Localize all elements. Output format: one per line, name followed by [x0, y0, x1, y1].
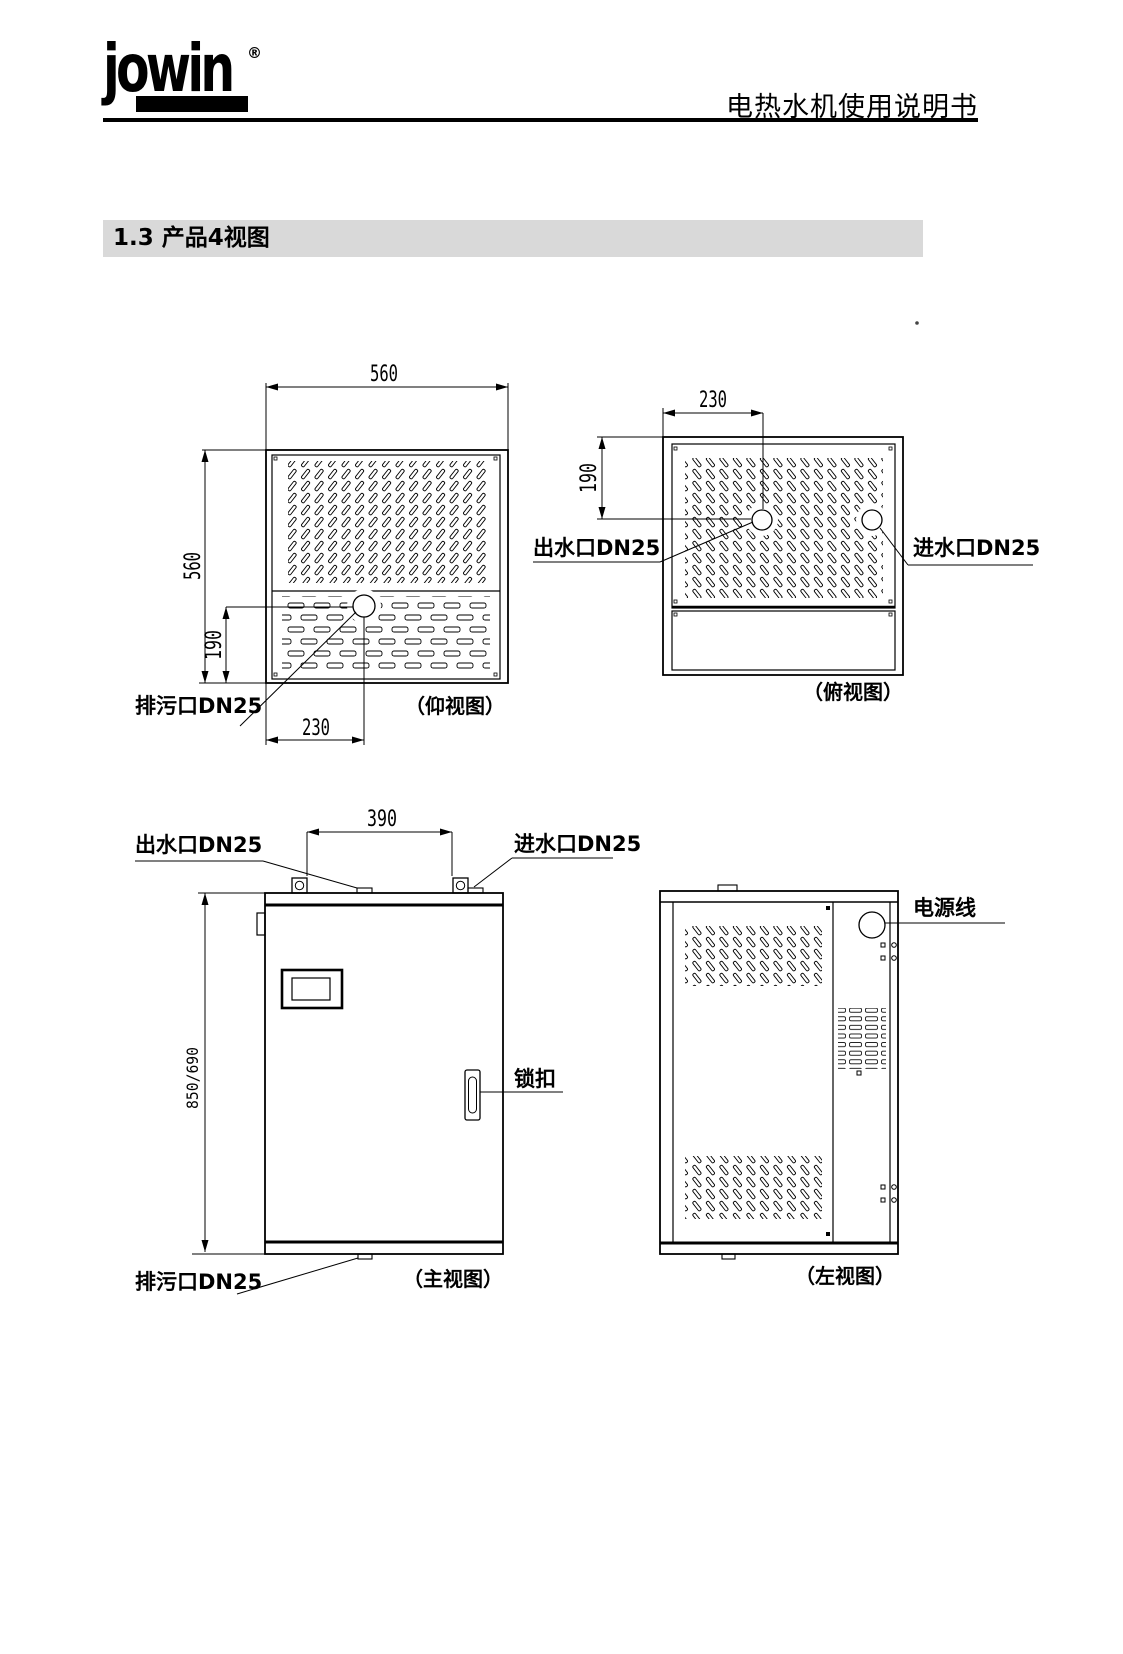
- stray-mark: [915, 321, 919, 325]
- fasteners-top: [881, 943, 896, 961]
- vent-slots-upper: [685, 926, 822, 986]
- label-power-cord: 电源线: [913, 896, 976, 920]
- outlet-fitting: [292, 878, 307, 893]
- dim-height: 560: [181, 552, 206, 580]
- front-strip: [672, 611, 895, 670]
- bottom-view: 560 560 190 230 排污口DN25 （仰视图）: [135, 362, 508, 745]
- latch-handle: [469, 1077, 477, 1113]
- fasteners-bottom: [881, 1185, 896, 1203]
- vent-slots-lower: [685, 1156, 822, 1219]
- control-panel-screen: [292, 978, 330, 1000]
- vent-grid: [838, 1008, 886, 1069]
- dim-port-spacing: 390: [367, 807, 397, 832]
- cabinet-outline: [265, 893, 503, 1254]
- panel-corner-screw: [826, 906, 830, 910]
- left-view: 电源线 （左视图）: [660, 885, 1005, 1288]
- vent-slots-diagonal: [288, 461, 487, 583]
- top-tab: [718, 885, 737, 891]
- outlet-fitting-hole: [295, 881, 303, 889]
- inlet-fitting: [453, 878, 468, 893]
- four-view-drawing: 560 560 190 230 排污口DN25 （仰视图）: [0, 0, 1123, 1654]
- leader-inlet: [474, 858, 512, 887]
- top-view-caption: （俯视图）: [803, 680, 903, 704]
- dim-outlet-offset-y: 190: [577, 463, 602, 493]
- bottom-view-caption: （仰视图）: [405, 694, 505, 718]
- label-outlet-port: 出水口DN25: [135, 833, 262, 857]
- dim-height: 850/690: [183, 1047, 202, 1109]
- control-panel-frame: [282, 970, 342, 1008]
- label-drain-port: 排污口DN25: [135, 1270, 262, 1294]
- inlet-fitting-hole: [456, 881, 464, 889]
- dimension-arrows: [202, 829, 453, 1253]
- dim-drain-offset-y: 190: [202, 630, 227, 660]
- front-view: 390 850/690 出水口DN25 进水口DN25 锁扣 排污口DN25 （…: [135, 807, 641, 1294]
- label-inlet-port: 进水口DN25: [514, 832, 641, 856]
- hinge: [257, 913, 265, 935]
- left-view-caption: （左视图）: [795, 1264, 895, 1288]
- top-view: 230 190 出水口DN25 进水口DN25 （俯视图）: [533, 388, 1040, 704]
- small-screw: [857, 1071, 861, 1075]
- leader-outlet: [263, 861, 357, 888]
- port-clearance: [746, 504, 778, 536]
- dim-outlet-offset-x: 230: [699, 388, 727, 413]
- port-clearance: [856, 504, 888, 536]
- dim-width: 560: [370, 362, 398, 387]
- label-latch: 锁扣: [514, 1067, 556, 1091]
- power-cord-hole: [859, 912, 885, 938]
- label-outlet-port: 出水口DN25: [533, 536, 660, 560]
- vent-slots-diagonal: [685, 458, 883, 598]
- manual-page: jowin ® 电热水机使用说明书 1.3 产品4视图: [0, 0, 1123, 1654]
- label-drain-port: 排污口DN25: [135, 694, 262, 718]
- front-view-caption: （主视图）: [403, 1267, 503, 1291]
- label-inlet-port: 进水口DN25: [913, 536, 1040, 560]
- dim-drain-offset-x: 230: [302, 716, 330, 741]
- panel-corner-screw: [826, 1232, 830, 1236]
